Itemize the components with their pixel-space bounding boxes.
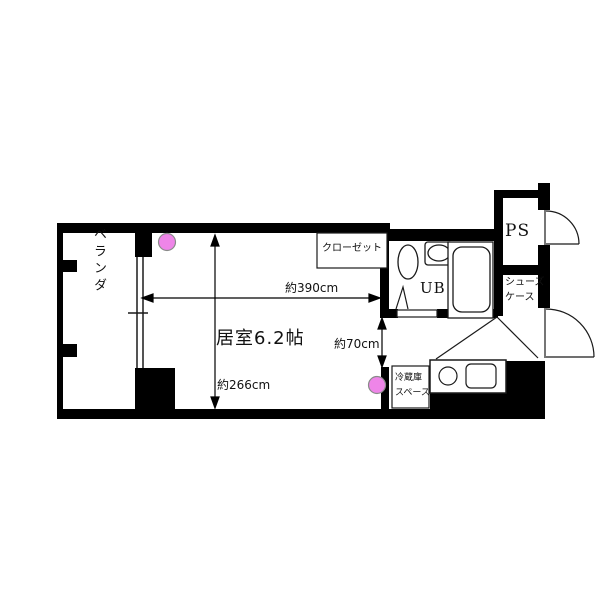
genkan-lines: [436, 317, 538, 359]
wall-ub-top: [389, 229, 503, 241]
wall-balcony-notch-top: [62, 260, 77, 272]
dim-arrowhead: [211, 397, 219, 408]
entrance-door-swing-arc: [546, 309, 594, 357]
balcony-window: [128, 257, 148, 368]
dim-arrowhead: [369, 294, 380, 302]
wall-ps-bottom: [503, 265, 550, 275]
dim-arrowhead: [378, 318, 386, 329]
wall-window-pier-top: [135, 223, 152, 257]
ub-door-swing: [396, 287, 408, 309]
floorplan-canvas: ベランダ 居室6.2帖 クローゼット UB PS シューズ ケース 冷蔵庫 スペ…: [0, 0, 600, 600]
ceiling-light-icon: [159, 234, 176, 251]
wall-balcony-left: [57, 223, 63, 419]
wall-under-counter: [430, 393, 506, 419]
unit-bath-label: UB: [420, 280, 446, 297]
closet-label: クローゼット: [317, 243, 387, 255]
genkan-edge-right: [497, 317, 538, 358]
toilet-icon: [398, 245, 418, 279]
dimension-width-label: 約390cm: [285, 282, 338, 296]
wall-top: [57, 223, 390, 233]
shoe-case-label: シューズ ケース: [505, 276, 545, 305]
dimension-passage-label: 約70cm: [334, 338, 380, 352]
genkan-edge-left: [436, 317, 497, 359]
kitchen-sink-icon: [439, 367, 457, 385]
ub-door: [397, 310, 437, 317]
wall-balcony-notch-bottom: [62, 344, 77, 357]
wall-ps-left: [494, 190, 503, 316]
stove-icon: [466, 364, 496, 388]
fridge-space-label: 冷蔵庫 スペース: [395, 371, 430, 402]
ceiling-light-icon: [369, 377, 386, 394]
ps-door-swing-arc: [546, 211, 579, 244]
living-room-label: 居室6.2帖: [216, 329, 305, 350]
wall-bottom-right-block: [506, 361, 545, 419]
wall-top-right-block: [538, 183, 550, 210]
wall-window-pier-bottom: [135, 368, 175, 413]
balcony-label: ベランダ: [90, 227, 105, 295]
dimension-depth-label: 約266cm: [217, 379, 270, 393]
dim-arrowhead: [211, 235, 219, 246]
wall-bottom: [57, 409, 430, 419]
bathtub-icon: [453, 247, 490, 312]
sink-basin-icon: [428, 245, 450, 261]
pipe-space-label: PS: [505, 222, 530, 242]
dim-arrowhead: [378, 356, 386, 367]
